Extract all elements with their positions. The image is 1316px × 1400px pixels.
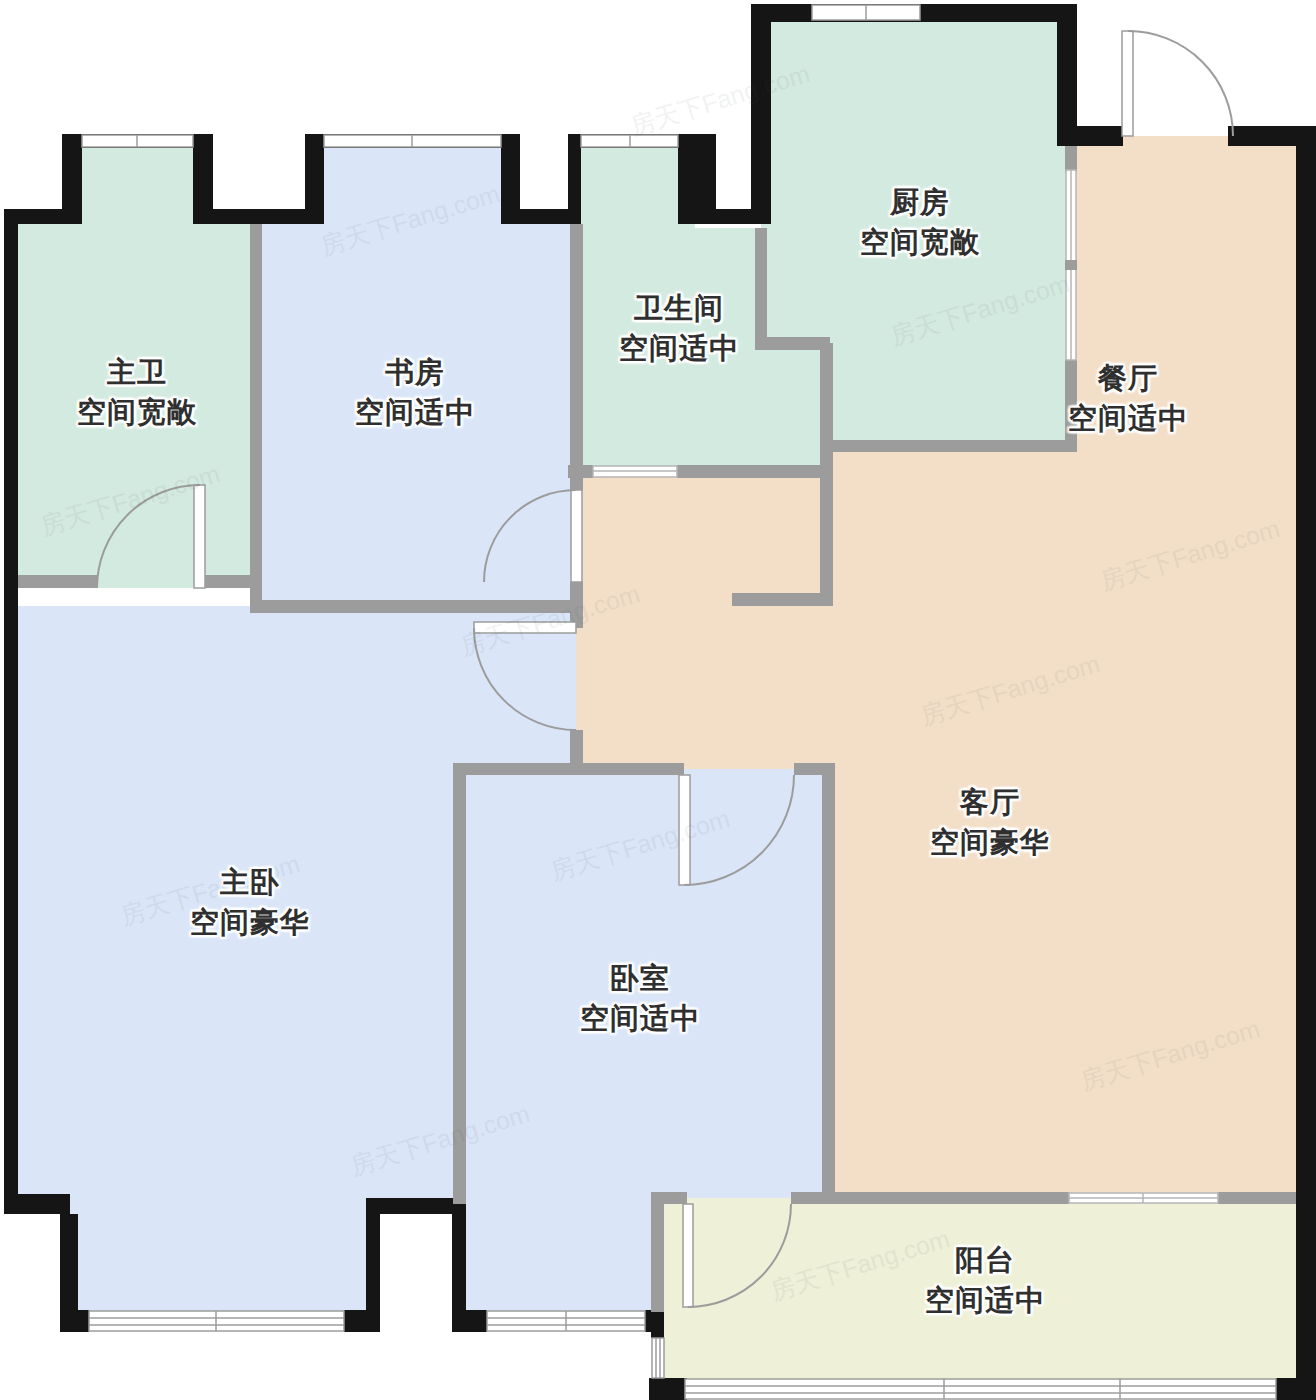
label-bedroom: 卧室 空间适中 xyxy=(580,958,700,1038)
room-name: 主卫 xyxy=(107,356,167,388)
room-desc: 空间适中 xyxy=(925,1280,1045,1320)
floor-plan: 主卫 空间宽敞 书房 空间适中 卫生间 空间适中 厨房 空间宽敞 餐厅 空间适中… xyxy=(0,0,1316,1400)
window-study xyxy=(324,135,501,147)
room-desc: 空间适中 xyxy=(580,998,700,1038)
room-name: 厨房 xyxy=(890,186,950,218)
room-desc: 空间适中 xyxy=(619,328,739,368)
room-name: 餐厅 xyxy=(1098,362,1158,394)
room-desc: 空间豪华 xyxy=(930,822,1050,862)
room-name: 书房 xyxy=(385,356,445,388)
room-desc: 空间适中 xyxy=(1068,398,1188,438)
sliding-door-bathroom xyxy=(593,466,677,477)
window-master-bath xyxy=(82,135,193,147)
room-desc: 空间宽敞 xyxy=(77,392,197,432)
room-name: 卫生间 xyxy=(634,292,724,324)
label-dining: 餐厅 空间适中 xyxy=(1068,358,1188,438)
room-desc: 空间豪华 xyxy=(190,902,310,942)
room-name: 阳台 xyxy=(955,1244,1015,1276)
label-living: 客厅 空间豪华 xyxy=(930,782,1050,862)
label-study: 书房 空间适中 xyxy=(355,352,475,432)
label-balcony: 阳台 空间适中 xyxy=(925,1240,1045,1320)
label-master-bath: 主卫 空间宽敞 xyxy=(77,352,197,432)
room-name: 卧室 xyxy=(610,962,670,994)
label-master-bedroom: 主卧 空间豪华 xyxy=(190,862,310,942)
window-bathroom xyxy=(581,135,678,147)
door-entry xyxy=(1122,31,1233,136)
room-name: 主卧 xyxy=(220,866,280,898)
window-bedroom xyxy=(487,1311,645,1331)
window-balcony-bottom xyxy=(685,1379,1276,1399)
room-name: 客厅 xyxy=(960,786,1020,818)
floor-plan-drawing xyxy=(0,0,1316,1400)
label-kitchen: 厨房 空间宽敞 xyxy=(860,182,980,262)
window-master-bedroom xyxy=(89,1311,344,1331)
window-kitchen xyxy=(812,5,920,20)
label-bathroom: 卫生间 空间适中 xyxy=(619,288,739,368)
sliding-door-balcony xyxy=(1069,1193,1218,1203)
room-desc: 空间适中 xyxy=(355,392,475,432)
room-desc: 空间宽敞 xyxy=(860,222,980,262)
sliding-door-kitchen xyxy=(1065,170,1077,360)
window-balcony-left xyxy=(652,1338,664,1378)
